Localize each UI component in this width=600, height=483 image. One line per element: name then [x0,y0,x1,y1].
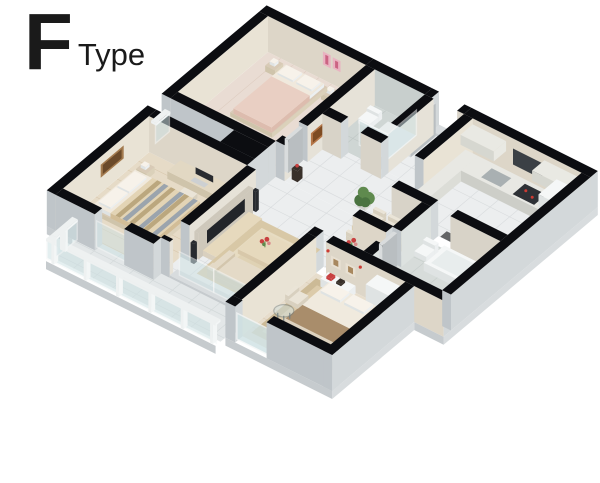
plant-leaves [360,197,370,207]
speaker-right [256,190,259,213]
art-pink-1-inner [325,55,328,65]
wall-bedroom-top-sw-right [268,141,275,183]
vase-flower [295,164,299,168]
wall-right-outer-left [442,290,451,330]
wall-kitchen-ne-right [590,171,597,213]
wall-bedroom-top-se-b-left [276,141,285,181]
glass-round-table [274,305,294,317]
wall-master-se-left [323,351,332,391]
sconce [326,249,329,252]
plant-leaves [358,187,369,198]
stove-burner [531,196,534,199]
floor-plan-page: F Type [0,0,600,483]
coffee-table-flowers [267,242,271,246]
railing-post-left [116,275,119,297]
stove-burner [524,189,527,192]
wall-kitchen-sw-a-right [431,200,438,242]
railing-post-left [51,242,54,264]
railing-post-left [84,258,87,280]
wall-bedroom-left-nw-left [47,190,56,230]
wall-bedroom-left-sw-b-right [154,238,161,280]
wall-shower-sw-b-right [381,137,388,179]
wall-living-west-b-right [170,239,173,278]
railing-post-right [65,229,67,252]
railing-post-left [181,307,184,329]
wall-living-west-b-left [161,238,170,278]
art-pink-2-inner [335,61,338,69]
railing-post-left [210,322,213,344]
plan-type-word: Type [78,37,145,73]
coffee-table-flowers [265,237,270,242]
sconce [359,266,362,269]
vanity-flowers [354,243,358,247]
plan-type-letter: F [24,4,71,80]
railing-post-left [60,228,65,252]
plan-title: F Type [24,4,145,80]
speaker-left [253,190,256,212]
wall-master-sw-a-left [225,302,235,343]
vanity-flowers [351,238,356,243]
wall-shower-sw-a-right [341,117,348,159]
coffee-table-flowers [262,243,266,247]
railing-post-left [148,291,151,313]
bedroom-top-door-left [285,138,288,173]
